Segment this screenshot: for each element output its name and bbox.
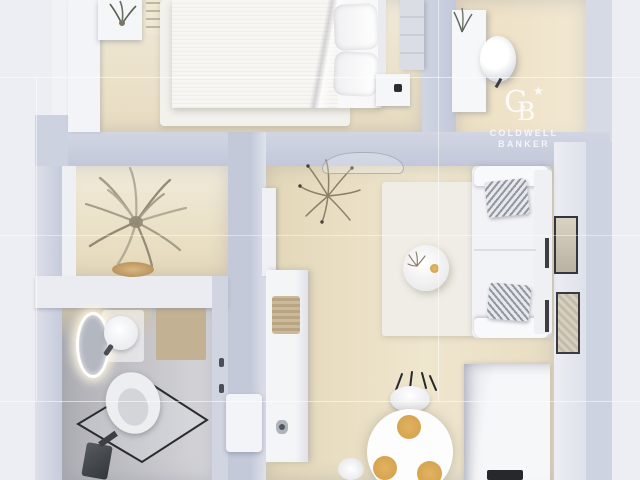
- floor-plan-render: C B ★ COLDWELL BANKER: [0, 0, 640, 480]
- wall-outer-right-bottom: [586, 142, 612, 480]
- sofa-backrest: [534, 170, 552, 334]
- led-ring-mirror: [76, 312, 110, 378]
- wall-hallway-inner-face: [62, 166, 76, 276]
- wooden-bowl: [112, 262, 154, 277]
- bathroom-door-hinge: [219, 384, 224, 393]
- basket: [272, 296, 300, 334]
- sofa-cushion: [484, 178, 530, 218]
- coffee-table-sprig: [406, 250, 428, 272]
- watermark-grid-line: [0, 77, 640, 78]
- shelf-plant: [104, 0, 140, 26]
- kitchen-counter: [464, 364, 550, 480]
- gold-place-setting: [417, 461, 442, 480]
- dining-chair-second: [338, 458, 364, 480]
- office-chair: [480, 36, 516, 82]
- brand-name-line2: BANKER: [476, 139, 572, 150]
- dresser: [400, 0, 424, 70]
- wall-art-frame: [554, 216, 578, 274]
- nightstand: [376, 74, 410, 106]
- desk-plant: [450, 6, 474, 34]
- wardrobe: [68, 0, 100, 132]
- logo-star-icon: ★: [533, 85, 544, 97]
- wall-art-frame: [556, 292, 580, 354]
- monogram-b: B: [517, 99, 535, 124]
- sofa-cushion: [487, 282, 532, 322]
- leaning-art-panel: [545, 300, 549, 332]
- cooktop: [487, 470, 523, 480]
- alarm-clock: [394, 84, 402, 92]
- tall-cabinet: [262, 188, 276, 276]
- pillow: [333, 3, 379, 51]
- watermark-grid-line: [0, 401, 640, 402]
- door-panel: [226, 394, 262, 452]
- sideboard-handle-dot: [279, 424, 285, 430]
- bath-mat: [156, 306, 206, 360]
- watermark-grid-line: [438, 0, 439, 401]
- wall-outer-right-top: [586, 0, 612, 142]
- gold-place-setting: [397, 415, 421, 439]
- gold-place-setting: [373, 456, 397, 480]
- leaning-art-panel: [545, 238, 549, 268]
- cb-monogram: C B ★: [476, 88, 572, 128]
- glass-console: [322, 152, 404, 174]
- wall-bathroom-top: [35, 276, 228, 308]
- brand-name-line1: COLDWELL: [476, 128, 572, 139]
- coldwell-banker-watermark: C B ★ COLDWELL BANKER: [476, 88, 572, 150]
- palm-plant: [78, 160, 193, 270]
- bathroom-door-handle: [219, 358, 224, 367]
- wall-left-jut: [35, 115, 68, 166]
- sofa-seam: [474, 249, 536, 251]
- wall-outer-left: [35, 166, 62, 480]
- pillow: [333, 51, 379, 97]
- watermark-grid-line: [36, 77, 37, 401]
- watermark-grid-line: [0, 235, 640, 236]
